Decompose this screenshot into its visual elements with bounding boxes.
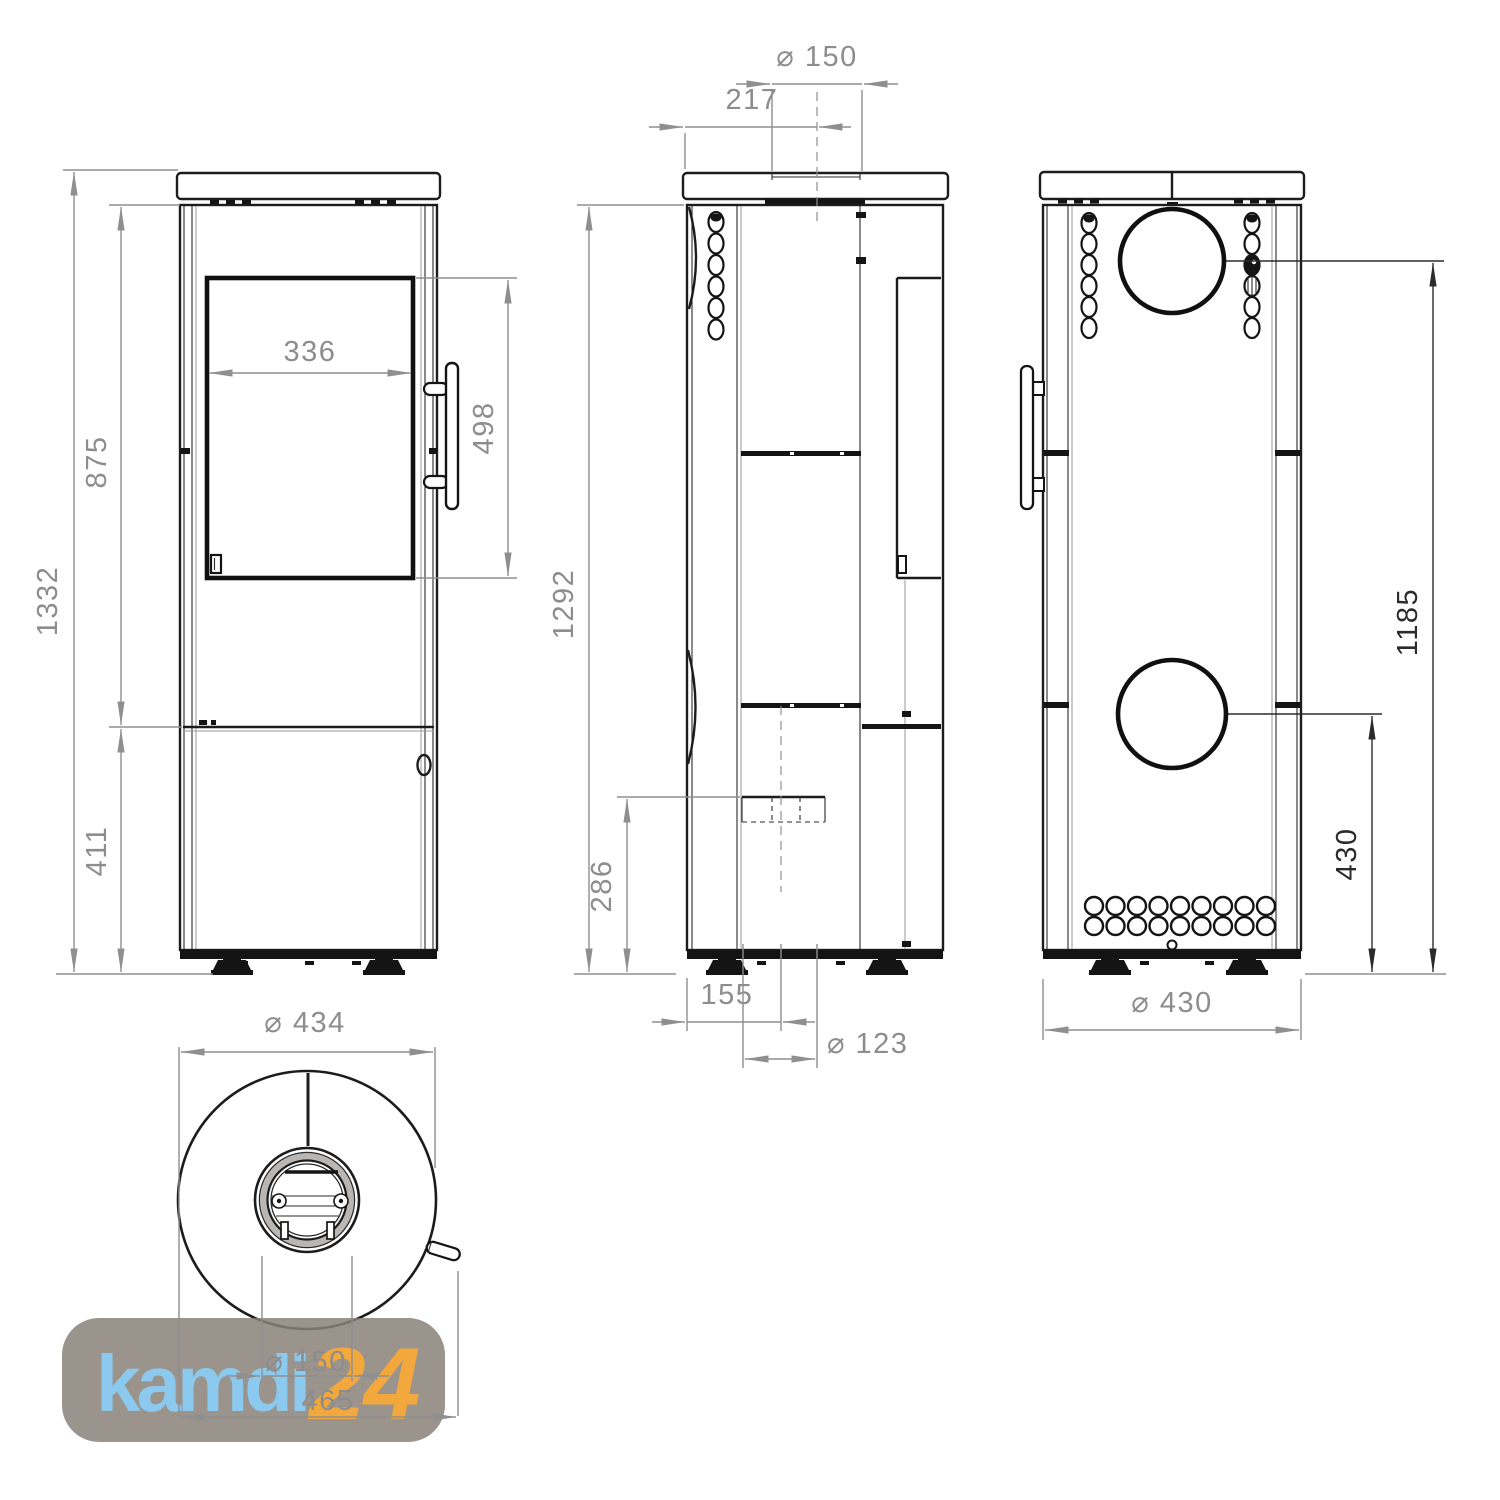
- dim-body-width: ⌀ 430: [1131, 987, 1212, 1019]
- front-view: [177, 173, 458, 975]
- base-vent-grid: [1085, 897, 1275, 935]
- back-body: [1043, 205, 1301, 950]
- dim-lower-height: 411: [81, 826, 113, 877]
- back-base-band: [1043, 950, 1301, 959]
- front-top-plate: [177, 173, 440, 199]
- dim-inlet-offset: 155: [701, 979, 754, 1011]
- dim-flue-diameter: ⌀ 150: [776, 41, 857, 73]
- dim-body-height: 1292: [548, 569, 580, 640]
- panel-seam-right: [429, 448, 437, 454]
- dim-inlet-diameter: ⌀ 123: [827, 1028, 908, 1060]
- dim-flue-collar-diameter: ⌀ 150: [265, 1346, 346, 1378]
- dim-flue-center-height: 1185: [1392, 588, 1424, 656]
- dim-inlet-height: 286: [586, 860, 618, 913]
- dim-body-diameter: ⌀ 434: [264, 1007, 345, 1039]
- door-glass: [207, 278, 413, 578]
- top-view: [178, 1071, 461, 1329]
- dim-overall-height: 1332: [32, 566, 64, 637]
- drawing-page: 1332 875 411 336 498: [0, 0, 1500, 1500]
- watermark-logo: kamdi 24: [62, 1318, 445, 1442]
- front-base-band: [180, 950, 437, 959]
- back-view: [1021, 172, 1304, 975]
- dim-glass-height: 498: [468, 402, 500, 455]
- side-view: [683, 92, 948, 975]
- dim-flue-offset: 217: [726, 84, 779, 116]
- dim-inlet-center-height: 430: [1331, 828, 1363, 881]
- technical-drawing: 1332 875 411 336 498: [0, 0, 1500, 1500]
- logo-brand-number: 24: [307, 1327, 419, 1441]
- door-handle-top: [425, 1240, 461, 1261]
- dim-upper-height: 875: [81, 436, 113, 489]
- flue-collar-top: [255, 1148, 359, 1252]
- screw-hole: [1168, 941, 1177, 950]
- dim-glass-width: 336: [284, 336, 337, 368]
- door-handle-rear: [1021, 366, 1044, 509]
- air-slider: [211, 555, 221, 573]
- dim-depth-with-handle: 465: [302, 1385, 355, 1417]
- panel-seam-left: [181, 448, 190, 454]
- sensor-plug: [1245, 255, 1260, 275]
